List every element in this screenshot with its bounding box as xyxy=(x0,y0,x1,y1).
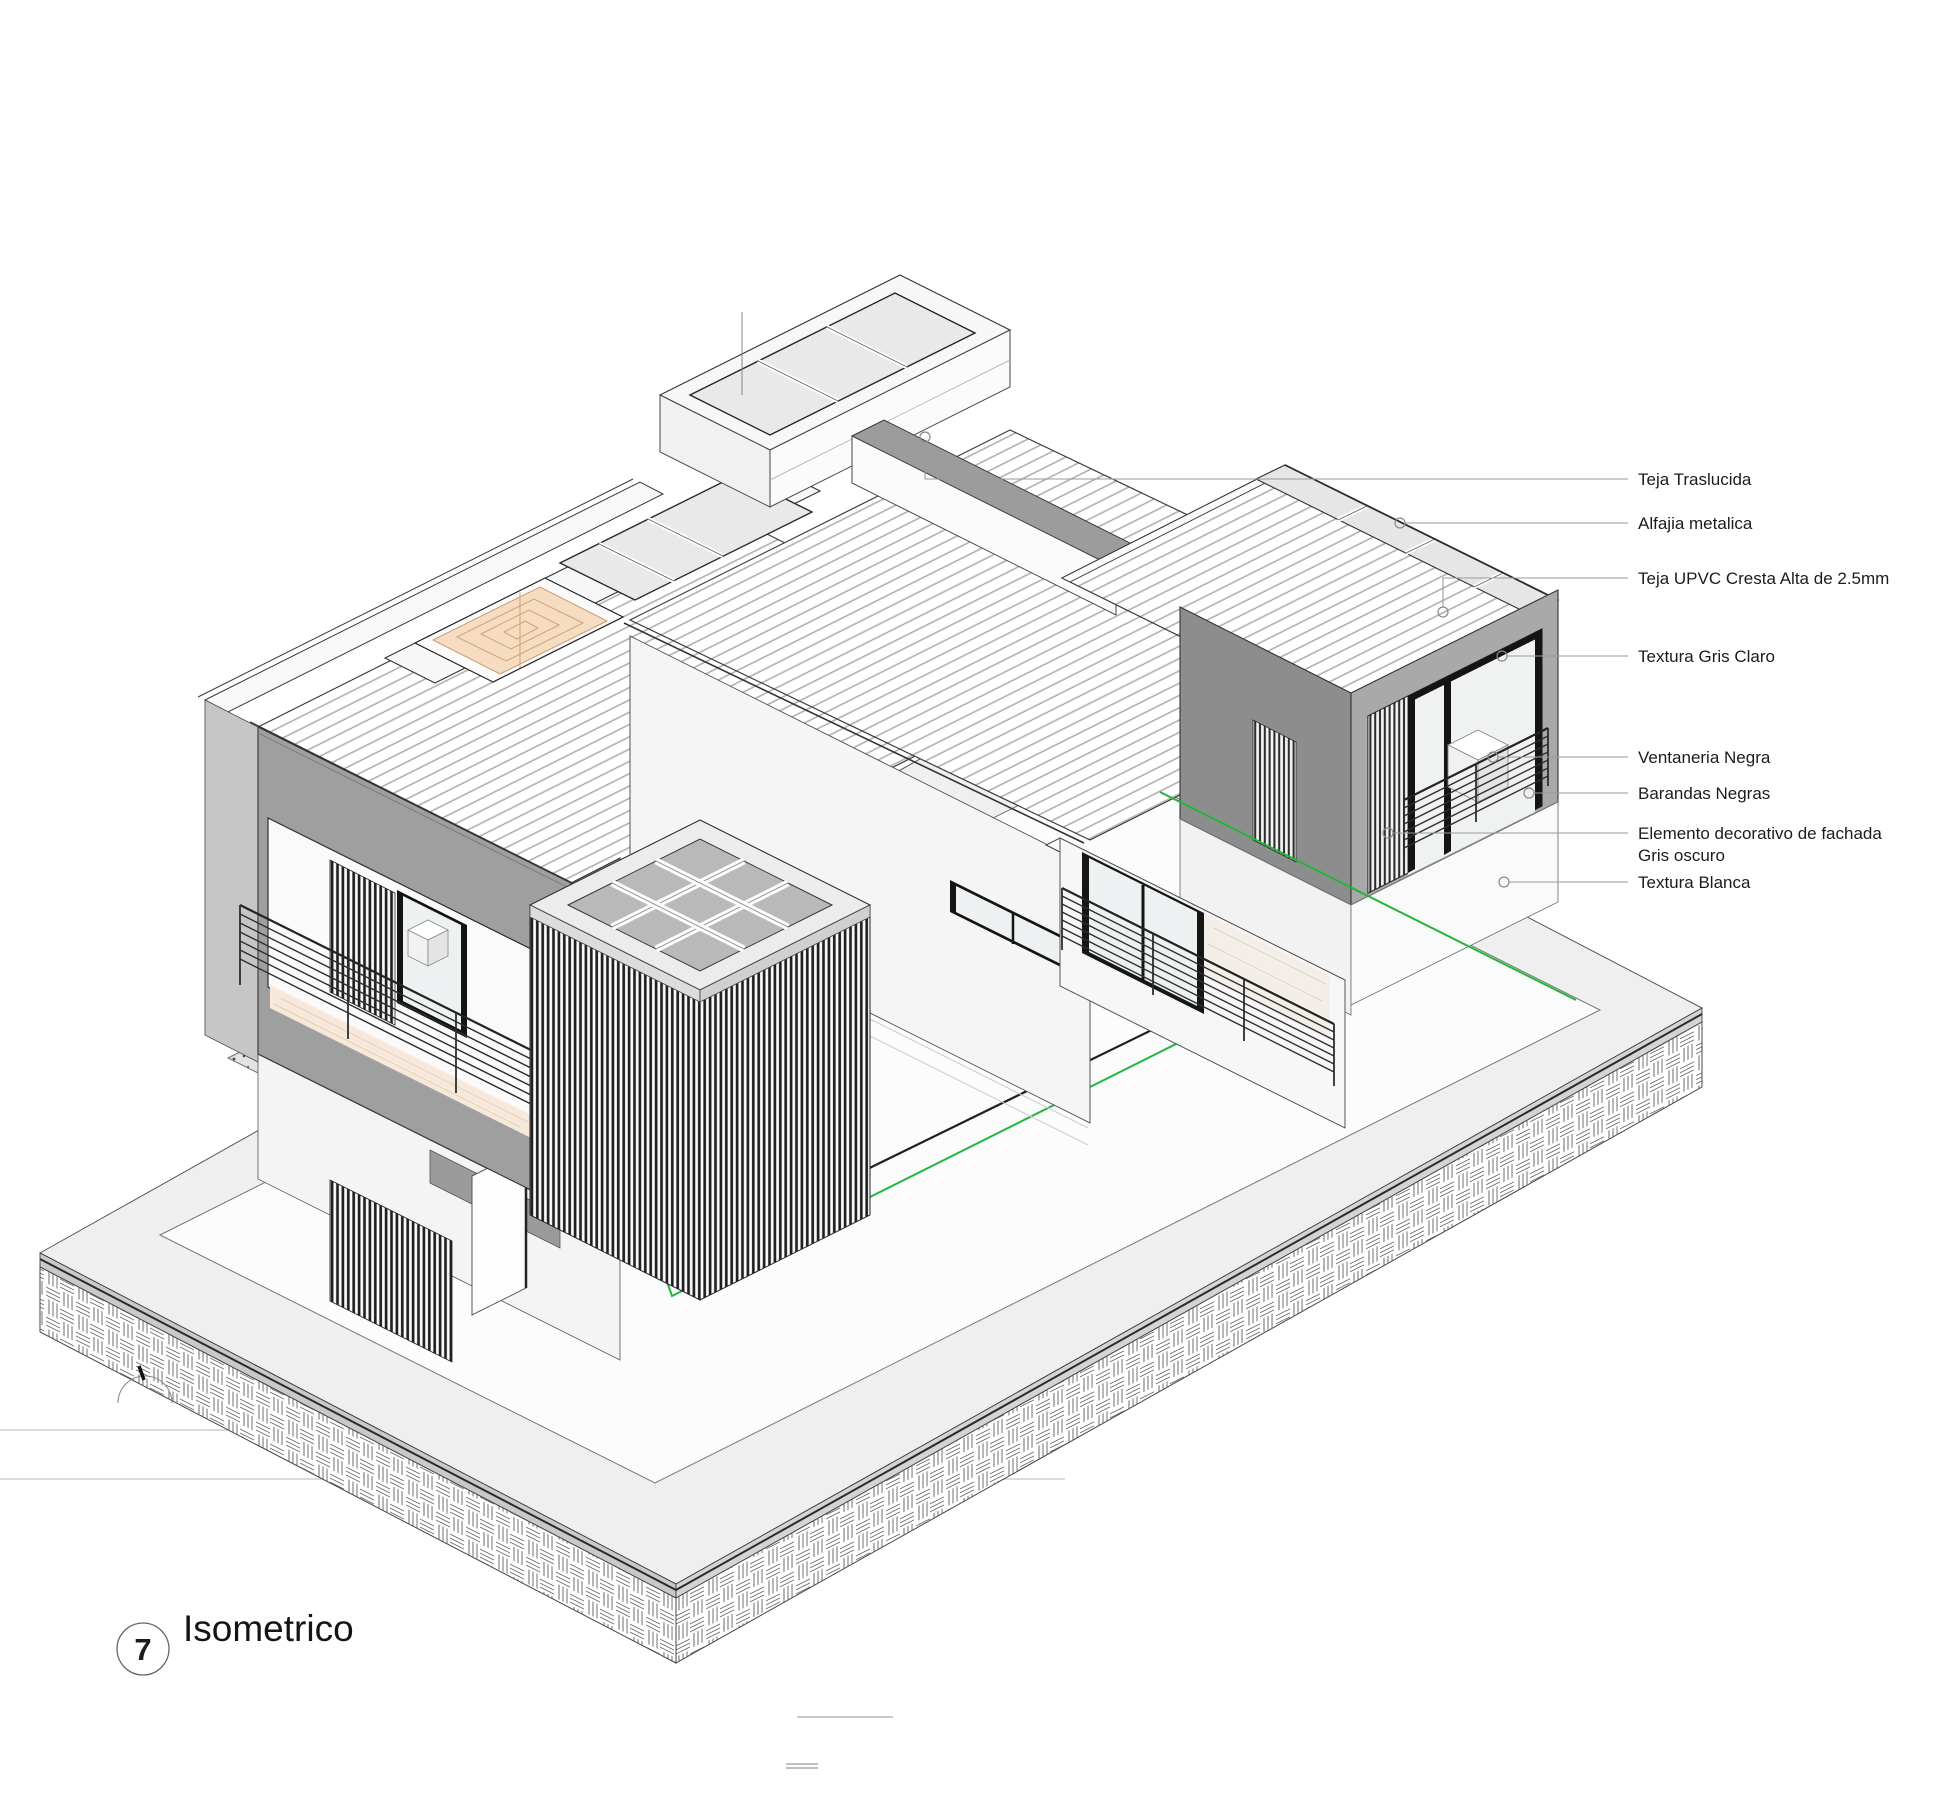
furniture-cube-left xyxy=(408,920,448,966)
sliver-left-nw xyxy=(205,700,258,1062)
louver-screen-right xyxy=(1368,696,1408,893)
label-alfajia-metalica: Alfajia metalica xyxy=(1638,514,1753,533)
annotation-labels: Teja Traslucida Alfajia metalica Teja UP… xyxy=(1638,470,1889,892)
label-teja-traslucida: Teja Traslucida xyxy=(1638,470,1752,489)
louver-tower xyxy=(530,820,870,1300)
leader-alfajia-metalica xyxy=(1395,518,1628,528)
label-textura-blanca: Textura Blanca xyxy=(1638,873,1751,892)
label-barandas-negras: Barandas Negras xyxy=(1638,784,1770,803)
label-ventaneria-negra: Ventaneria Negra xyxy=(1638,748,1771,767)
label-teja-upvc: Teja UPVC Cresta Alta de 2.5mm xyxy=(1638,569,1889,588)
view-title: Isometrico xyxy=(183,1608,354,1649)
isometric-drawing: Teja Traslucida Alfajia metalica Teja UP… xyxy=(0,0,1952,1813)
view-title-block: 7 Isometrico xyxy=(117,1608,354,1675)
label-elemento-decorativo: Elemento decorativo de fachada xyxy=(1638,824,1882,843)
sheet-bottom-lines xyxy=(786,1717,893,1768)
label-textura-gris-claro: Textura Gris Claro xyxy=(1638,647,1775,666)
furniture-cube xyxy=(1448,730,1508,802)
label-elemento-decorativo-line2: Gris oscuro xyxy=(1638,846,1725,865)
view-number: 7 xyxy=(134,1632,151,1667)
